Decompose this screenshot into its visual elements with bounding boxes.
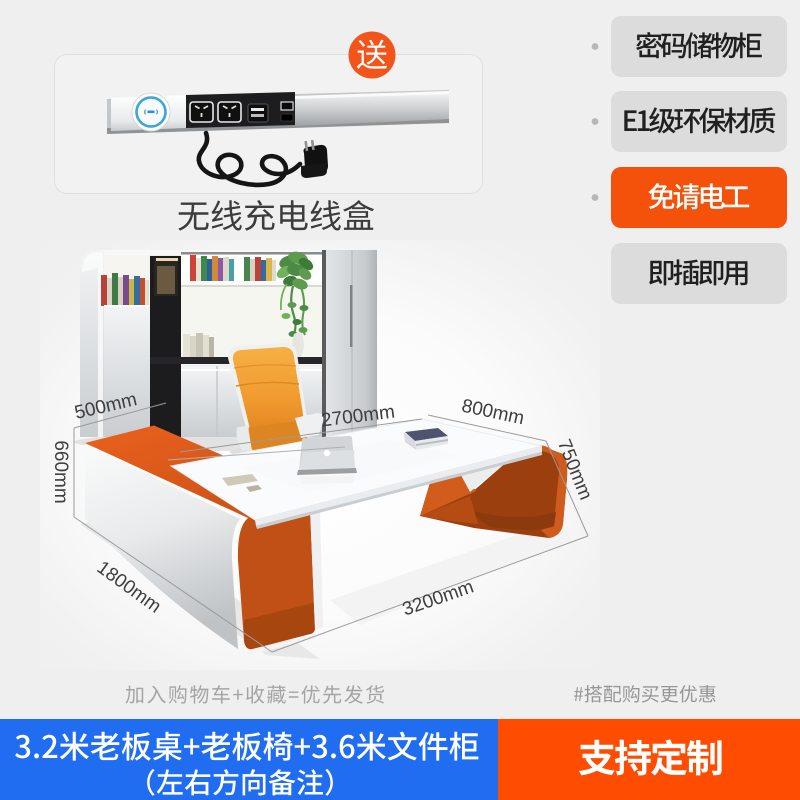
svg-text:660mm: 660mm: [50, 440, 71, 503]
